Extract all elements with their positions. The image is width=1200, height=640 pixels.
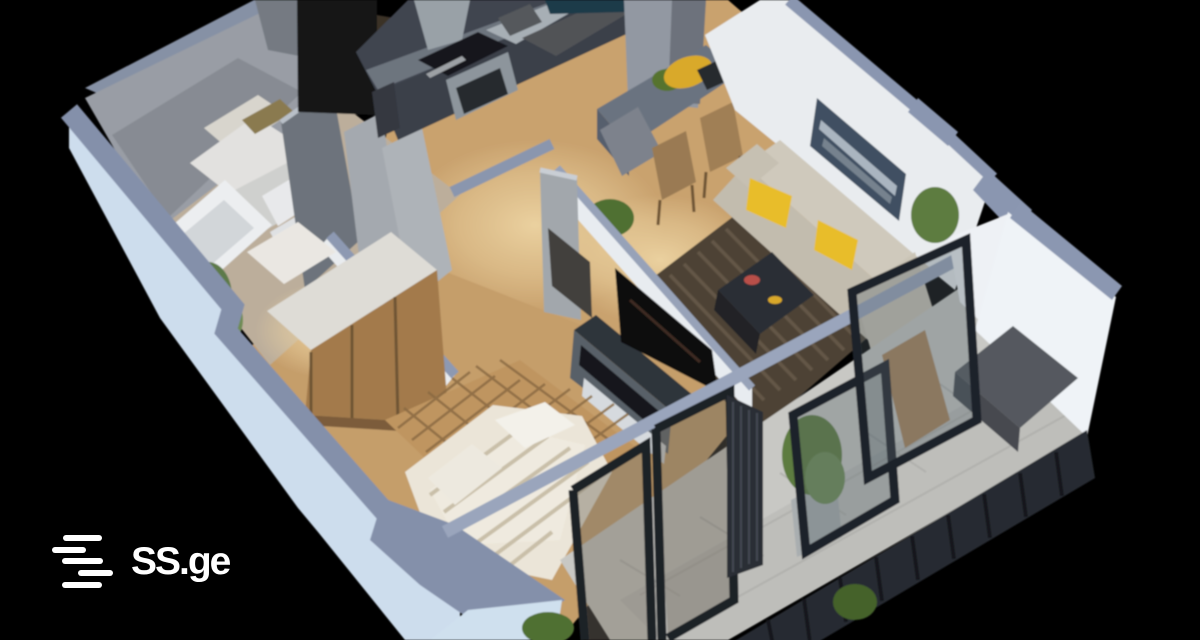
svg-text:SS.ge: SS.ge [131, 540, 231, 583]
